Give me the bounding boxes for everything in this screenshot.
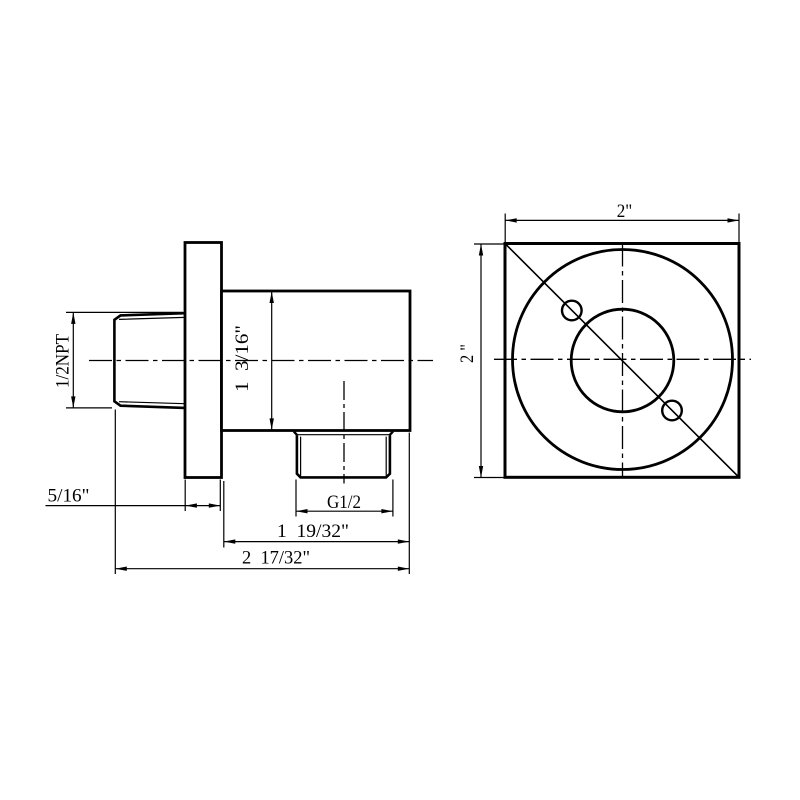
svg-text:1/2NPT: 1/2NPT	[53, 334, 74, 388]
svg-text:2": 2"	[617, 201, 633, 222]
svg-text:1 19/32": 1 19/32"	[277, 521, 349, 542]
svg-text:5/16": 5/16"	[48, 486, 90, 507]
svg-text:2 17/32": 2 17/32"	[242, 548, 310, 569]
svg-text:1 3/16": 1 3/16"	[232, 325, 253, 392]
svg-text:G1/2: G1/2	[327, 492, 361, 513]
svg-text:2 ": 2 "	[457, 344, 478, 363]
